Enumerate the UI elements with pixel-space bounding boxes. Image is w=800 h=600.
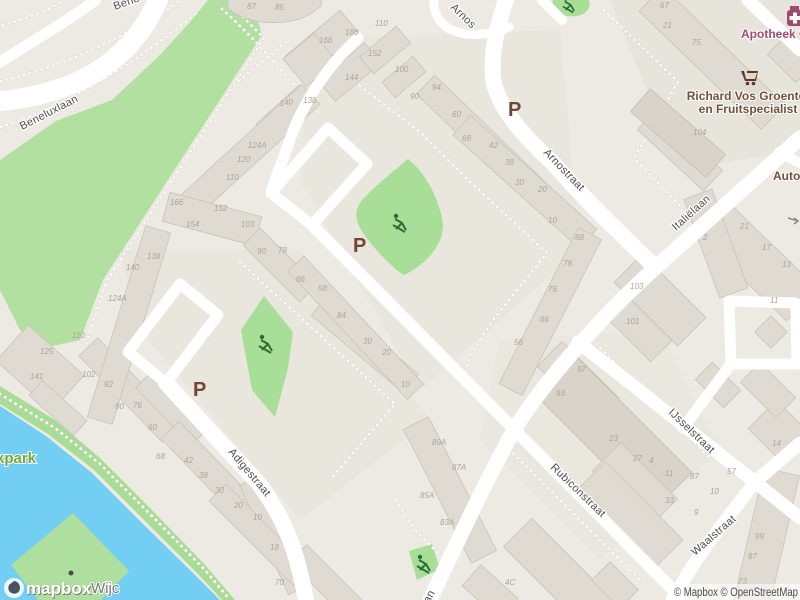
svg-text:87: 87 [690, 472, 699, 481]
svg-text:85A: 85A [420, 491, 434, 500]
svg-text:68: 68 [156, 452, 165, 461]
svg-text:60: 60 [452, 110, 461, 119]
svg-text:66: 66 [296, 275, 305, 284]
svg-text:20: 20 [233, 501, 243, 510]
svg-text:P: P [193, 379, 206, 401]
svg-text:21: 21 [739, 222, 749, 231]
svg-text:10: 10 [710, 487, 719, 496]
svg-text:84: 84 [337, 311, 346, 320]
svg-text:Autob: Autob [773, 169, 800, 183]
svg-text:144: 144 [345, 73, 359, 82]
svg-text:P: P [508, 99, 521, 121]
svg-text:92: 92 [104, 380, 113, 389]
svg-text:70: 70 [275, 578, 284, 587]
svg-text:38: 38 [505, 158, 514, 167]
svg-text:66: 66 [540, 315, 549, 324]
svg-text:42: 42 [184, 456, 193, 465]
svg-text:87: 87 [247, 2, 256, 11]
svg-text:138: 138 [147, 252, 161, 261]
svg-text:9: 9 [694, 508, 699, 517]
svg-text:76: 76 [548, 285, 557, 294]
svg-text:76: 76 [133, 401, 142, 410]
svg-text:100: 100 [395, 65, 409, 74]
svg-text:120: 120 [237, 155, 251, 164]
svg-text:88: 88 [575, 233, 584, 242]
svg-text:166: 166 [319, 36, 333, 45]
svg-text:Apotheek O: Apotheek O [741, 27, 800, 41]
svg-text:89A: 89A [432, 438, 446, 447]
svg-text:58: 58 [318, 284, 327, 293]
svg-text:68: 68 [462, 134, 471, 143]
svg-text:38: 38 [199, 471, 208, 480]
svg-text:4C: 4C [505, 578, 515, 587]
svg-text:125: 125 [40, 347, 54, 356]
svg-text:mapbox: mapbox [26, 579, 92, 598]
svg-text:10: 10 [253, 513, 262, 522]
svg-text:42: 42 [489, 141, 498, 150]
svg-text:97: 97 [577, 365, 586, 374]
svg-text:56: 56 [514, 338, 523, 347]
svg-text:Wijc: Wijc [91, 580, 120, 597]
svg-text:140: 140 [126, 263, 140, 272]
svg-text:87: 87 [748, 552, 757, 561]
svg-text:14: 14 [772, 439, 781, 448]
svg-text:140: 140 [279, 97, 294, 108]
svg-text:154: 154 [186, 220, 200, 229]
svg-text:60: 60 [148, 423, 157, 432]
svg-text:110: 110 [375, 19, 388, 28]
svg-text:78: 78 [278, 246, 287, 255]
svg-text:57: 57 [727, 467, 736, 476]
svg-text:30: 30 [363, 337, 372, 346]
svg-text:138: 138 [303, 96, 317, 105]
svg-text:166: 166 [170, 198, 184, 207]
svg-text:17: 17 [762, 243, 771, 252]
svg-text:33: 33 [665, 496, 674, 505]
svg-text:104: 104 [693, 128, 707, 137]
svg-text:P: P [353, 235, 366, 257]
svg-text:30: 30 [215, 486, 224, 495]
svg-text:124A: 124A [248, 141, 267, 150]
svg-text:90: 90 [115, 402, 124, 411]
svg-text:10: 10 [401, 380, 410, 389]
svg-text:99: 99 [755, 532, 764, 541]
svg-text:93: 93 [556, 389, 565, 398]
svg-text:18: 18 [270, 543, 279, 552]
svg-text:87A: 87A [452, 463, 466, 472]
svg-text:110: 110 [72, 331, 85, 340]
svg-text:kpark: kpark [0, 450, 37, 467]
svg-text:90: 90 [410, 92, 419, 101]
svg-text:21: 21 [662, 21, 672, 30]
svg-text:11: 11 [665, 469, 673, 478]
svg-text:27: 27 [632, 454, 642, 463]
svg-text:en Fruitspecialist: en Fruitspecialist [699, 102, 798, 116]
svg-text:85: 85 [275, 3, 284, 12]
svg-text:© Mapbox © OpenStreetMap: © Mapbox © OpenStreetMap [674, 587, 798, 599]
svg-text:186: 186 [345, 28, 359, 37]
svg-text:152: 152 [368, 49, 382, 58]
svg-text:102: 102 [82, 370, 96, 379]
svg-text:20: 20 [537, 185, 547, 194]
svg-text:75: 75 [692, 38, 701, 47]
svg-text:124A: 124A [108, 294, 127, 303]
svg-text:78: 78 [563, 259, 572, 268]
svg-text:23: 23 [608, 434, 618, 443]
svg-text:11: 11 [770, 296, 778, 305]
svg-text:13: 13 [782, 260, 791, 269]
svg-text:30: 30 [515, 178, 524, 187]
svg-text:152: 152 [214, 204, 228, 213]
svg-text:94: 94 [432, 83, 441, 92]
svg-text:20: 20 [381, 348, 391, 357]
svg-text:83A: 83A [440, 518, 454, 527]
svg-text:110: 110 [226, 173, 239, 182]
svg-text:141: 141 [30, 372, 43, 381]
svg-text:90: 90 [257, 247, 266, 256]
svg-text:103: 103 [630, 282, 644, 291]
svg-text:101: 101 [626, 317, 639, 326]
svg-text:2: 2 [702, 233, 708, 242]
svg-text:4: 4 [649, 456, 654, 465]
svg-text:103: 103 [241, 220, 255, 229]
svg-text:10: 10 [548, 216, 557, 225]
svg-text:67: 67 [660, 1, 669, 10]
svg-text:Richard Vos Groente-: Richard Vos Groente- [687, 89, 800, 103]
